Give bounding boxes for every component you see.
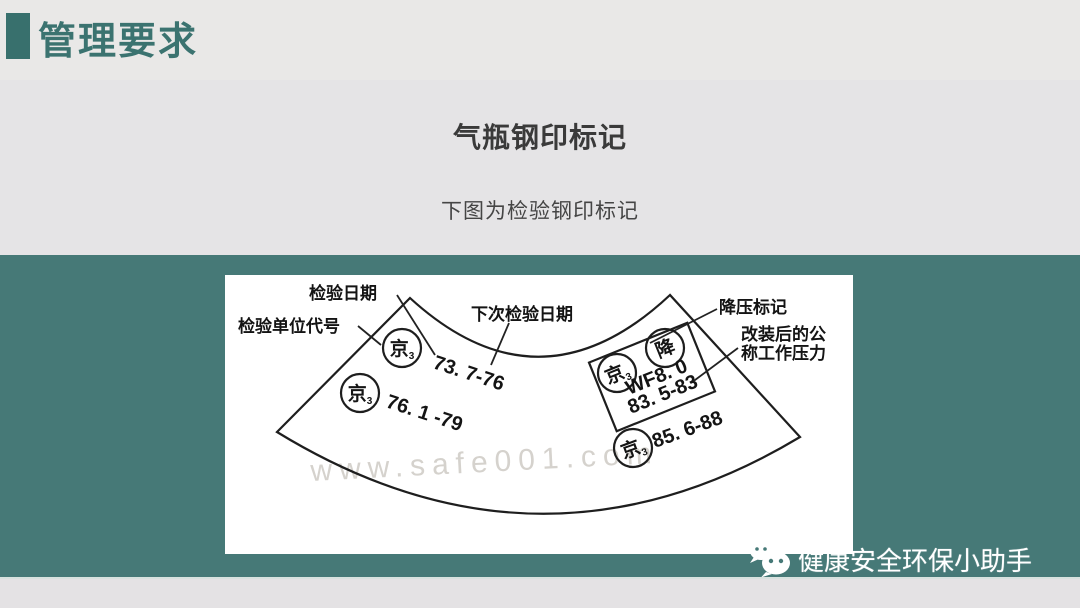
stamp-diagram-svg: www.safe001.com 检验日期 检验单位代号 下次检验日期 降压标记 … xyxy=(225,275,853,554)
label-inspection-date: 检验日期 xyxy=(309,283,377,303)
wechat-icon xyxy=(748,540,792,578)
figure-watermark: www.safe001.com xyxy=(309,437,660,488)
stamp-unit-code-1: 京3 xyxy=(383,329,421,367)
leader-pressure-reduction xyxy=(650,309,717,343)
svg-text:京3: 京3 xyxy=(348,382,373,407)
label-modified-pressure-line1: 改装后的公 xyxy=(741,324,826,344)
slide: 管理要求 气瓶钢印标记 下图为检验钢印标记 www.safe001.com 检验… xyxy=(0,0,1080,608)
footer-watermark: 健康安全环保小助手 xyxy=(748,540,1032,578)
label-inspection-unit-code: 检验单位代号 xyxy=(238,316,340,336)
leader-inspection-unit-code xyxy=(358,326,381,345)
label-pressure-reduction-mark: 降压标记 xyxy=(719,297,787,317)
stamp-unit-code-2: 京3 xyxy=(341,374,379,412)
content-subtitle: 下图为检验钢印标记 xyxy=(0,195,1080,225)
footer-watermark-text: 健康安全环保小助手 xyxy=(798,541,1032,578)
label-next-inspection-date: 下次检验日期 xyxy=(471,304,573,324)
stamp-date-2: 76. 1 -79 xyxy=(383,391,465,436)
page-title: 管理要求 xyxy=(38,10,198,65)
content-title: 气瓶钢印标记 xyxy=(0,116,1080,156)
stamp-date-1: 73. 7-76 xyxy=(430,352,507,396)
leader-modified-pressure xyxy=(691,348,738,383)
svg-text:京3: 京3 xyxy=(390,337,415,362)
bottom-strip xyxy=(0,577,1080,608)
diagram-band: www.safe001.com 检验日期 检验单位代号 下次检验日期 降压标记 … xyxy=(0,255,1080,577)
header-accent-bar xyxy=(6,13,30,59)
slide-header: 管理要求 xyxy=(0,0,1080,80)
cylinder-stamp-figure: www.safe001.com 检验日期 检验单位代号 下次检验日期 降压标记 … xyxy=(225,275,853,554)
leader-next-inspection-date xyxy=(491,323,509,365)
label-modified-pressure-line2: 称工作压力 xyxy=(741,343,826,363)
